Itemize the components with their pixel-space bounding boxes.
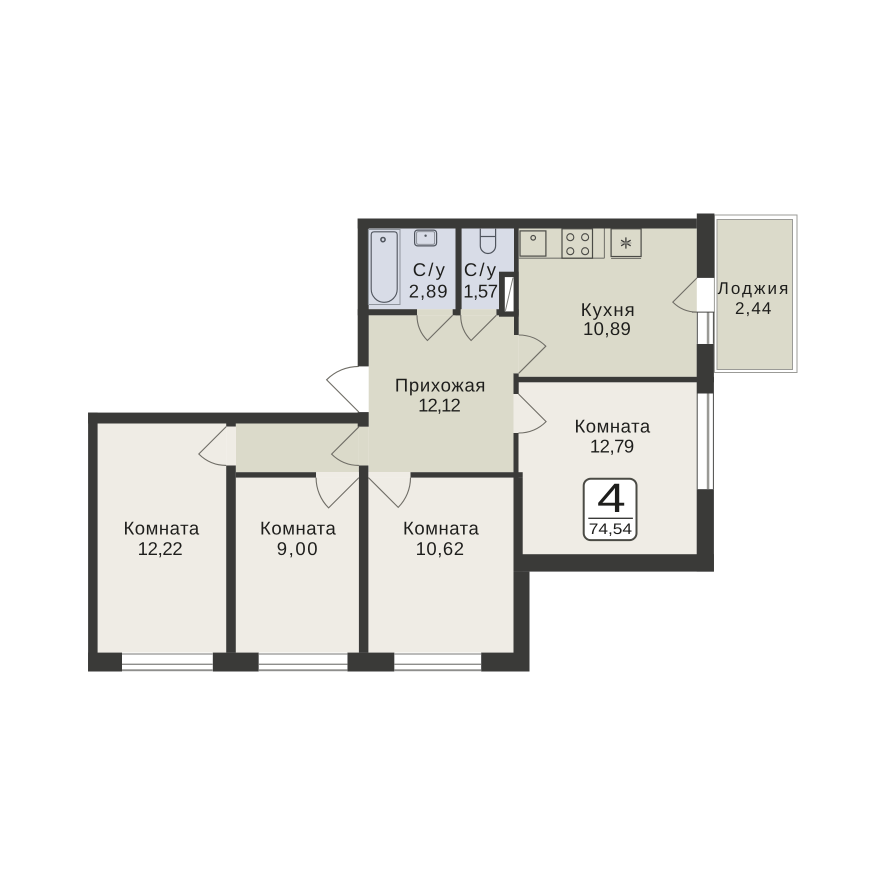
svg-text:9,00: 9,00 (277, 538, 319, 559)
svg-text:С/у: С/у (464, 259, 498, 280)
svg-text:12,12: 12,12 (418, 395, 460, 416)
svg-text:Комната: Комната (574, 415, 650, 436)
svg-text:74,54: 74,54 (589, 521, 633, 538)
svg-text:1,57: 1,57 (463, 281, 498, 302)
svg-text:2,89: 2,89 (409, 281, 449, 302)
svg-text:С/у: С/у (413, 259, 447, 280)
svg-text:10,62: 10,62 (416, 538, 465, 559)
svg-text:Комната: Комната (260, 518, 336, 539)
svg-text:Комната: Комната (123, 518, 199, 539)
svg-text:4: 4 (597, 475, 626, 521)
svg-text:Лоджия: Лоджия (718, 279, 791, 298)
svg-text:12,79: 12,79 (590, 436, 634, 457)
svg-text:Комната: Комната (403, 518, 479, 539)
svg-text:Прихожая: Прихожая (395, 374, 486, 395)
svg-text:2,44: 2,44 (735, 299, 773, 318)
svg-text:10,89: 10,89 (583, 318, 631, 339)
svg-text:12,22: 12,22 (138, 538, 183, 559)
